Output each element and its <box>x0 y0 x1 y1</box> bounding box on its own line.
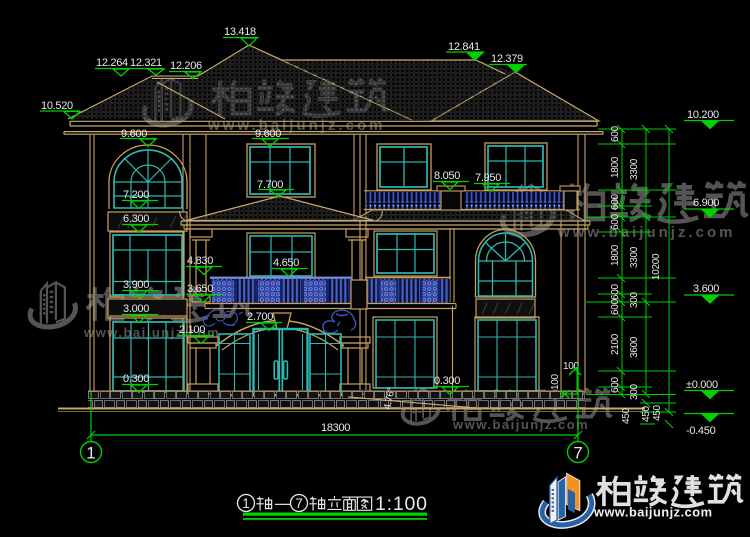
svg-text:1: 1 <box>86 444 95 463</box>
svg-text:450: 450 <box>621 407 632 424</box>
svg-text:www.baijunjz.com: www.baijunjz.com <box>593 505 712 520</box>
svg-text:1800: 1800 <box>610 244 621 266</box>
svg-text:9.600: 9.600 <box>255 128 281 140</box>
svg-text:100: 100 <box>550 373 561 390</box>
svg-text:13.418: 13.418 <box>224 26 256 38</box>
svg-text:18300: 18300 <box>321 422 350 434</box>
svg-text:4.650: 4.650 <box>273 257 299 269</box>
svg-text:2100: 2100 <box>610 333 621 355</box>
svg-text:3300: 3300 <box>629 158 640 180</box>
svg-text:8.050: 8.050 <box>434 170 460 182</box>
svg-text:300: 300 <box>629 383 640 400</box>
svg-text:1800: 1800 <box>610 156 621 178</box>
svg-text:7: 7 <box>295 496 303 511</box>
svg-text:6.900: 6.900 <box>693 197 719 209</box>
svg-text:7: 7 <box>573 444 582 463</box>
svg-text:3.650: 3.650 <box>187 283 213 295</box>
svg-text:7.200: 7.200 <box>123 189 149 201</box>
svg-text:0.300: 0.300 <box>123 373 149 385</box>
svg-text:12.206: 12.206 <box>170 60 202 72</box>
svg-text:3.000: 3.000 <box>123 303 149 315</box>
svg-text:12.321: 12.321 <box>130 57 162 69</box>
svg-text:3.600: 3.600 <box>693 283 719 295</box>
svg-text:3.900: 3.900 <box>123 279 149 291</box>
svg-text:6.300: 6.300 <box>123 213 149 225</box>
svg-text:10.200: 10.200 <box>687 109 719 121</box>
svg-text:12.264: 12.264 <box>96 57 128 69</box>
svg-text:450: 450 <box>652 404 663 421</box>
svg-text:10.520: 10.520 <box>41 100 73 112</box>
svg-text:300: 300 <box>629 291 640 308</box>
svg-text:10200: 10200 <box>651 253 662 280</box>
svg-text:600: 600 <box>610 193 621 210</box>
svg-text:600: 600 <box>610 125 621 142</box>
svg-text:9.600: 9.600 <box>121 128 147 140</box>
svg-text:600: 600 <box>610 283 621 300</box>
svg-text:4.830: 4.830 <box>187 255 213 267</box>
svg-text:0.300: 0.300 <box>434 375 460 387</box>
svg-text:600: 600 <box>610 298 621 315</box>
svg-text:3600: 3600 <box>629 336 640 358</box>
svg-text:1: 1 <box>242 496 250 511</box>
svg-text:7.700: 7.700 <box>257 179 283 191</box>
svg-text:1:100: 1:100 <box>375 493 428 515</box>
svg-text:600: 600 <box>610 376 621 393</box>
svg-text:2.700: 2.700 <box>247 311 273 323</box>
svg-text:2.100: 2.100 <box>179 324 205 336</box>
svg-text:7.950: 7.950 <box>475 172 501 184</box>
svg-text:3300: 3300 <box>629 246 640 268</box>
svg-text:12.841: 12.841 <box>448 41 480 53</box>
svg-text:450: 450 <box>641 405 652 422</box>
svg-text:-0.450: -0.450 <box>686 425 716 437</box>
svg-text:±0.000: ±0.000 <box>686 379 718 391</box>
svg-text:600: 600 <box>610 213 621 230</box>
svg-text:www.baijunjz.com: www.baijunjz.com <box>452 417 589 432</box>
svg-text:12.379: 12.379 <box>491 53 523 65</box>
